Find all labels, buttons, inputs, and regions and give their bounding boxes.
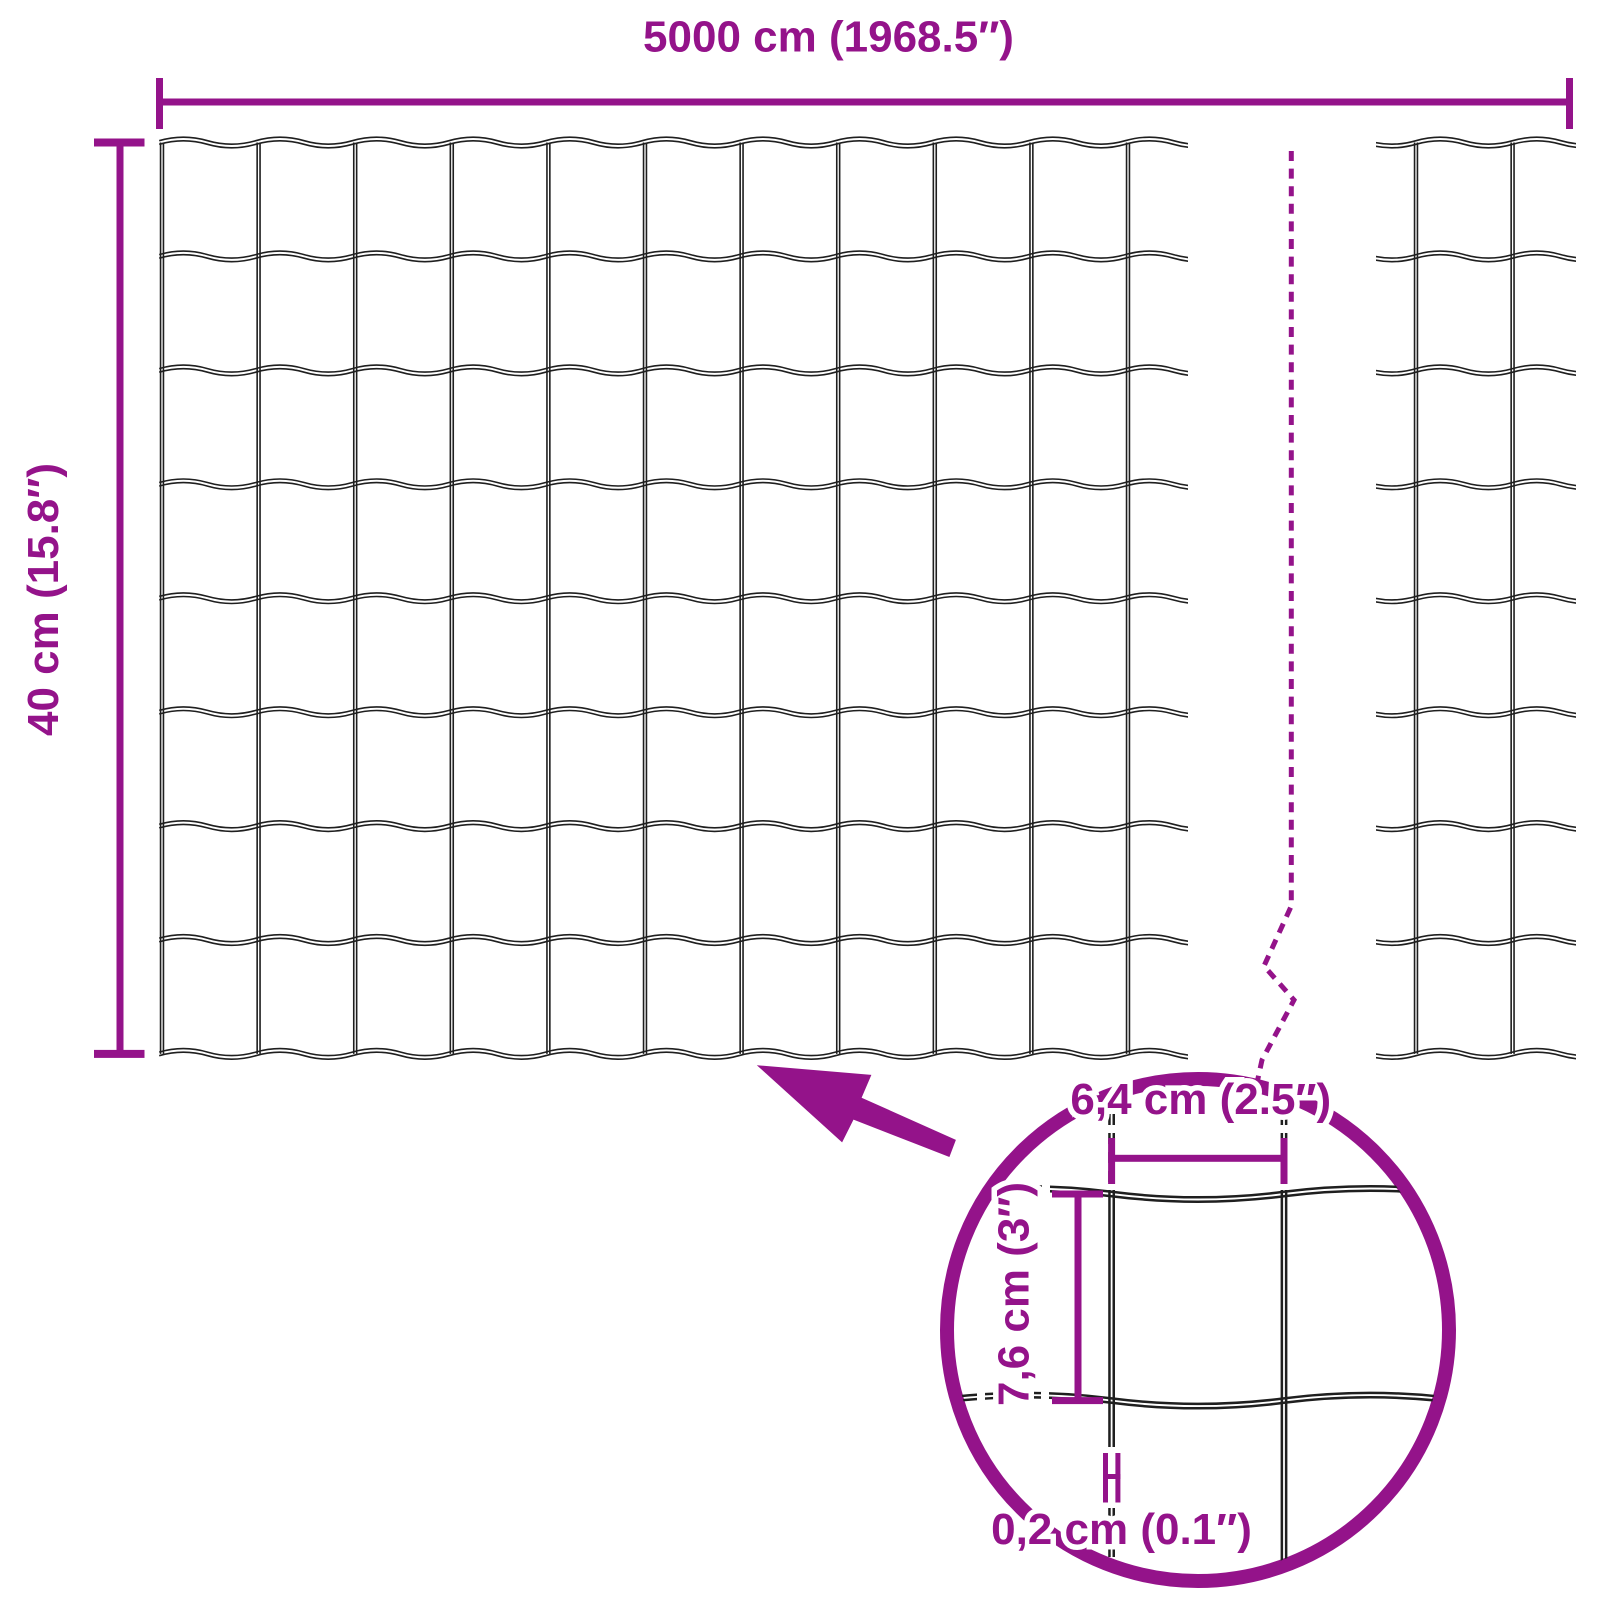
svg-text:5000 cm (1968.5″): 5000 cm (1968.5″) [643,13,1014,62]
svg-text:6,4 cm (2.5″): 6,4 cm (2.5″) [1070,1075,1331,1124]
svg-text:7,6 cm (3″): 7,6 cm (3″) [989,1182,1038,1406]
svg-text:0,2 cm (0.1″): 0,2 cm (0.1″) [991,1505,1252,1554]
svg-text:40 cm (15.8″): 40 cm (15.8″) [19,463,68,736]
